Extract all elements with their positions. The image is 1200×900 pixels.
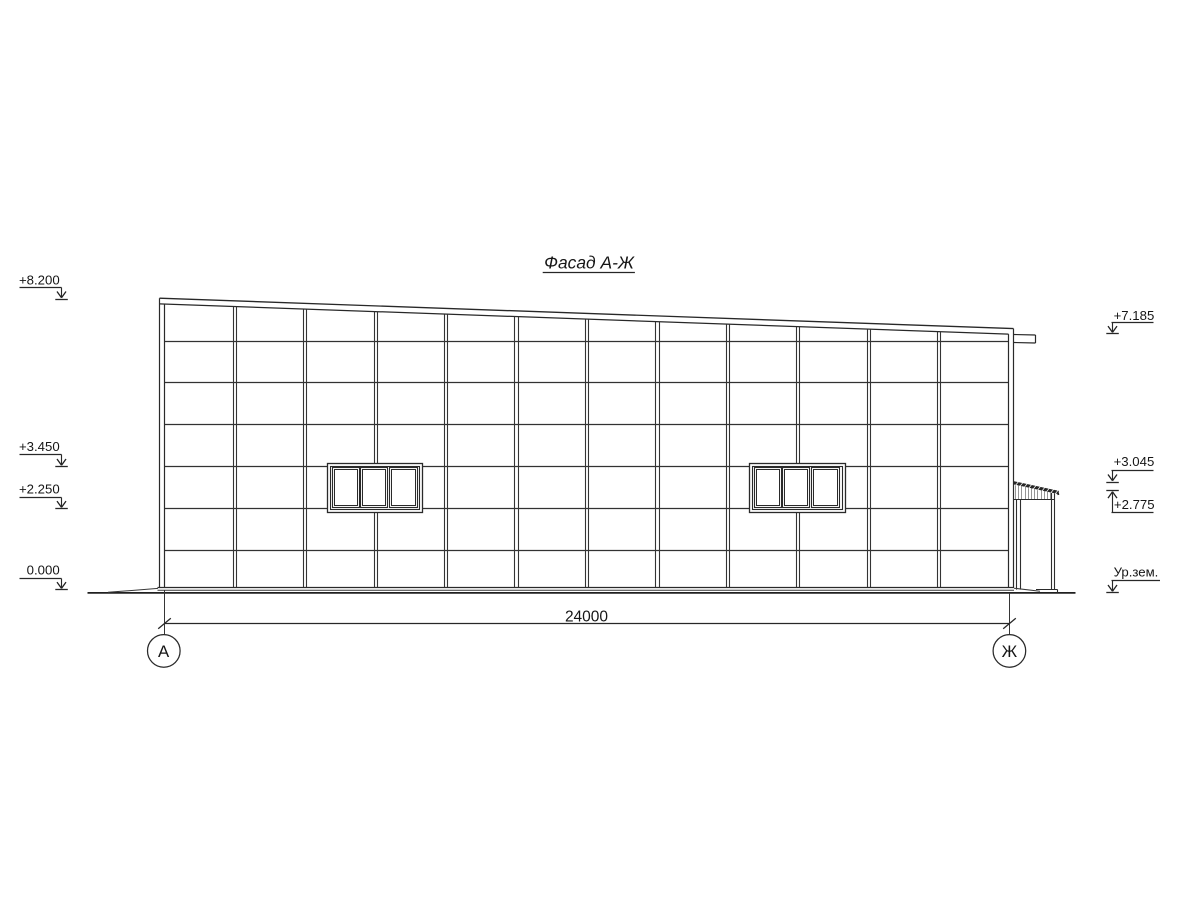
svg-text:24000: 24000 — [565, 608, 608, 625]
svg-text:А: А — [158, 642, 170, 661]
svg-text:+3.045: +3.045 — [1114, 454, 1155, 469]
svg-text:+8.200: +8.200 — [19, 272, 60, 287]
svg-text:0.000: 0.000 — [27, 562, 60, 577]
svg-text:Фасад А-Ж: Фасад А-Ж — [544, 252, 635, 272]
svg-text:Ур.зем.: Ур.зем. — [1114, 565, 1159, 580]
svg-text:+7.185: +7.185 — [1114, 308, 1155, 323]
svg-text:+3.450: +3.450 — [19, 439, 60, 454]
svg-text:+2.250: +2.250 — [19, 481, 60, 496]
svg-text:+2.775: +2.775 — [1114, 497, 1155, 512]
svg-text:Ж: Ж — [1002, 642, 1018, 661]
